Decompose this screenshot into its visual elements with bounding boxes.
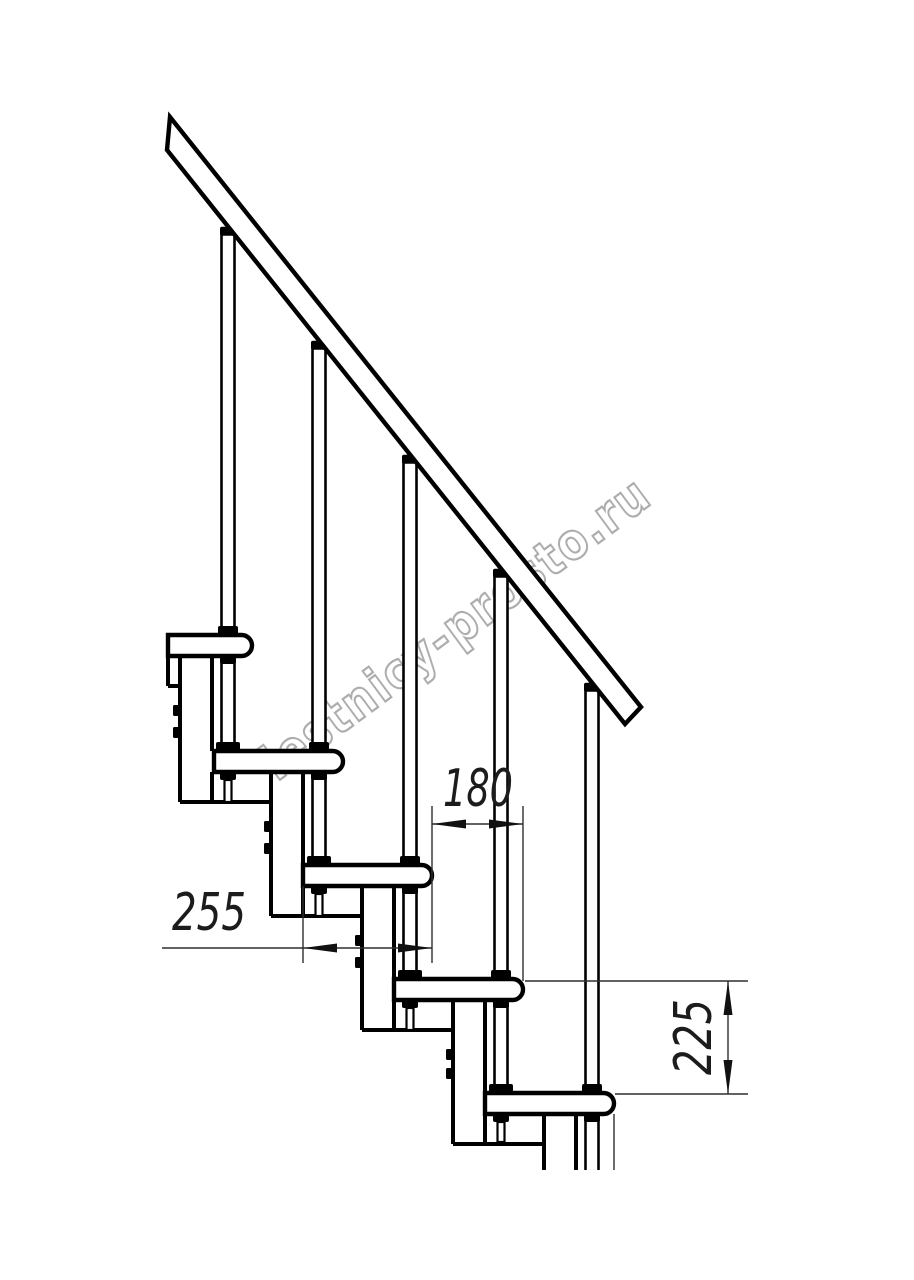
baluster: [495, 572, 508, 1093]
drawing-svg: lestnicy-prosto.ru: [0, 0, 914, 1280]
riser-height-dimension-label: 225: [664, 999, 724, 1075]
nut-icon: [220, 772, 236, 780]
tread: [168, 635, 252, 656]
collar-icon: [491, 970, 511, 980]
support-module: [544, 1114, 576, 1170]
collar-icon: [582, 1084, 602, 1094]
collar-icon: [216, 742, 240, 752]
bolt-icon: [264, 821, 272, 832]
arrowhead-icon: [724, 981, 733, 1015]
baluster-rods: [225, 780, 505, 1142]
arrowhead-icon: [432, 820, 466, 829]
collar-icon: [489, 1084, 513, 1094]
nut-icon: [402, 1000, 418, 1008]
collar-icon: [309, 742, 329, 752]
baluster: [586, 686, 599, 1093]
nut-icon: [311, 772, 327, 780]
arrowhead-icon: [724, 1060, 733, 1094]
bolt-icon: [446, 1049, 454, 1060]
bolt-icon: [355, 957, 363, 968]
staircase-technical-drawing: lestnicy-prosto.ru: [0, 0, 914, 1280]
collar-icon: [400, 856, 420, 866]
nut-icon: [402, 886, 418, 894]
baluster: [313, 344, 326, 865]
nut-icon: [493, 1114, 509, 1122]
baluster: [222, 230, 235, 751]
nut-icon: [220, 656, 236, 664]
nut-icon: [311, 886, 327, 894]
tread: [303, 865, 432, 886]
arrowhead-icon: [303, 944, 337, 953]
tread: [214, 751, 343, 772]
nut-icon: [493, 1000, 509, 1008]
tread: [394, 979, 523, 1000]
run-dimension-label: 180: [443, 759, 513, 819]
bolt-icon: [264, 843, 272, 854]
bolt-icon: [446, 1068, 454, 1079]
tread-depth-dimension-label: 255: [172, 883, 246, 943]
bolt-icon: [173, 705, 181, 716]
baluster: [404, 458, 417, 979]
collar-icon: [218, 626, 238, 636]
bolt-icon: [355, 935, 363, 946]
support-module: [168, 635, 271, 802]
bolt-icon: [173, 727, 181, 738]
nut-icon: [584, 1114, 600, 1122]
collar-icon: [398, 970, 422, 980]
collar-icon: [307, 856, 331, 866]
tread: [485, 1093, 614, 1114]
